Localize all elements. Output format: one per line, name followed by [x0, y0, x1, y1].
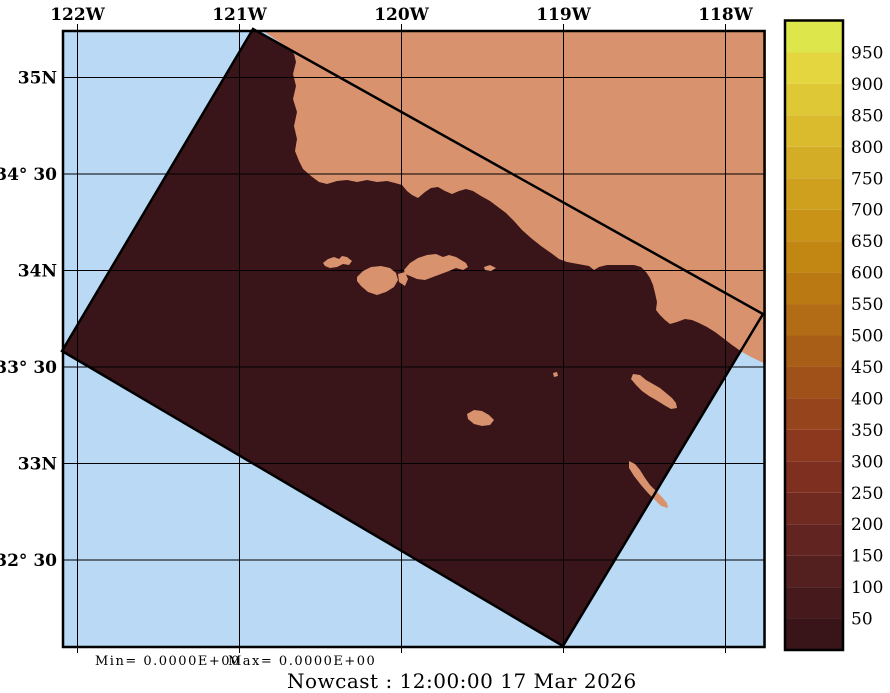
colorbar-tick: 150 [851, 547, 883, 567]
colorbar-segment [786, 430, 843, 461]
colorbar-segment [786, 493, 843, 524]
lat-label-34n: 34N [18, 262, 57, 282]
lon-axis: 122W 121W 120W 119W 118W [50, 5, 753, 25]
lon-label-121w: 121W [212, 5, 267, 25]
lat-axis: 35N 34° 30 34N 33° 30 33N 32° 30 [0, 69, 57, 572]
colorbar-tick: 400 [851, 389, 883, 409]
colorbar-segment [786, 178, 843, 209]
map-plot: 122W 121W 120W 119W 118W 35N 34° 30 34N … [0, 0, 890, 693]
lon-label-122w: 122W [50, 5, 105, 25]
lat-label-35n: 35N [18, 69, 57, 89]
colorbar-segment [786, 398, 843, 429]
colorbar-segment [786, 336, 843, 367]
colorbar-tick-labels: 950 900 850 800 750 700 650 600 550 500 … [851, 44, 883, 630]
colorbar-tick: 350 [851, 421, 883, 441]
nowcast-map-figure: 122W 121W 120W 119W 118W 35N 34° 30 34N … [0, 0, 890, 693]
lat-label-34-30: 34° 30 [0, 165, 57, 185]
colorbar-tick: 850 [851, 106, 883, 126]
colorbar-segment [786, 210, 843, 241]
colorbar-tick: 750 [851, 169, 883, 189]
colorbar-tick: 600 [851, 264, 883, 284]
colorbar-segment [786, 367, 843, 398]
field-max-annotation: Max= 0.0000E+00 [228, 654, 376, 669]
colorbar-segment [786, 556, 843, 587]
colorbar-tick: 300 [851, 452, 883, 472]
colorbar-tick: 450 [851, 358, 883, 378]
colorbar-tick: 650 [851, 232, 883, 252]
colorbar-tick: 250 [851, 484, 883, 504]
colorbar-segment [786, 619, 843, 650]
colorbar-segment [786, 241, 843, 272]
colorbar-tick: 500 [851, 327, 883, 347]
field-min-annotation: Min= 0.0000E+00 [95, 654, 241, 669]
colorbar-tick: 900 [851, 75, 883, 95]
lon-label-119w: 119W [536, 5, 591, 25]
colorbar-segment [786, 115, 843, 146]
lat-label-33n: 33N [18, 455, 57, 475]
colorbar-tick: 950 [851, 44, 883, 64]
colorbar-segment [786, 587, 843, 618]
colorbar-segment [786, 273, 843, 304]
lat-label-33-30: 33° 30 [0, 358, 57, 378]
colorbar-tick: 50 [851, 610, 873, 630]
colorbar [785, 21, 843, 651]
colorbar-segment [786, 304, 843, 335]
colorbar-tick: 100 [851, 578, 883, 598]
colorbar-segment [786, 147, 843, 178]
lon-label-120w: 120W [374, 5, 429, 25]
lon-label-118w: 118W [698, 5, 753, 25]
colorbar-segment [786, 524, 843, 555]
colorbar-tick: 200 [851, 515, 883, 535]
colorbar-segment [786, 21, 843, 52]
colorbar-segment [786, 84, 843, 115]
nowcast-timestamp: Nowcast : 12:00:00 17 Mar 2026 [287, 669, 637, 693]
colorbar-segment [786, 461, 843, 492]
colorbar-tick: 800 [851, 138, 883, 158]
colorbar-tick: 700 [851, 201, 883, 221]
colorbar-tick: 550 [851, 295, 883, 315]
colorbar-segment [786, 52, 843, 83]
lat-label-32-30: 32° 30 [0, 551, 57, 571]
